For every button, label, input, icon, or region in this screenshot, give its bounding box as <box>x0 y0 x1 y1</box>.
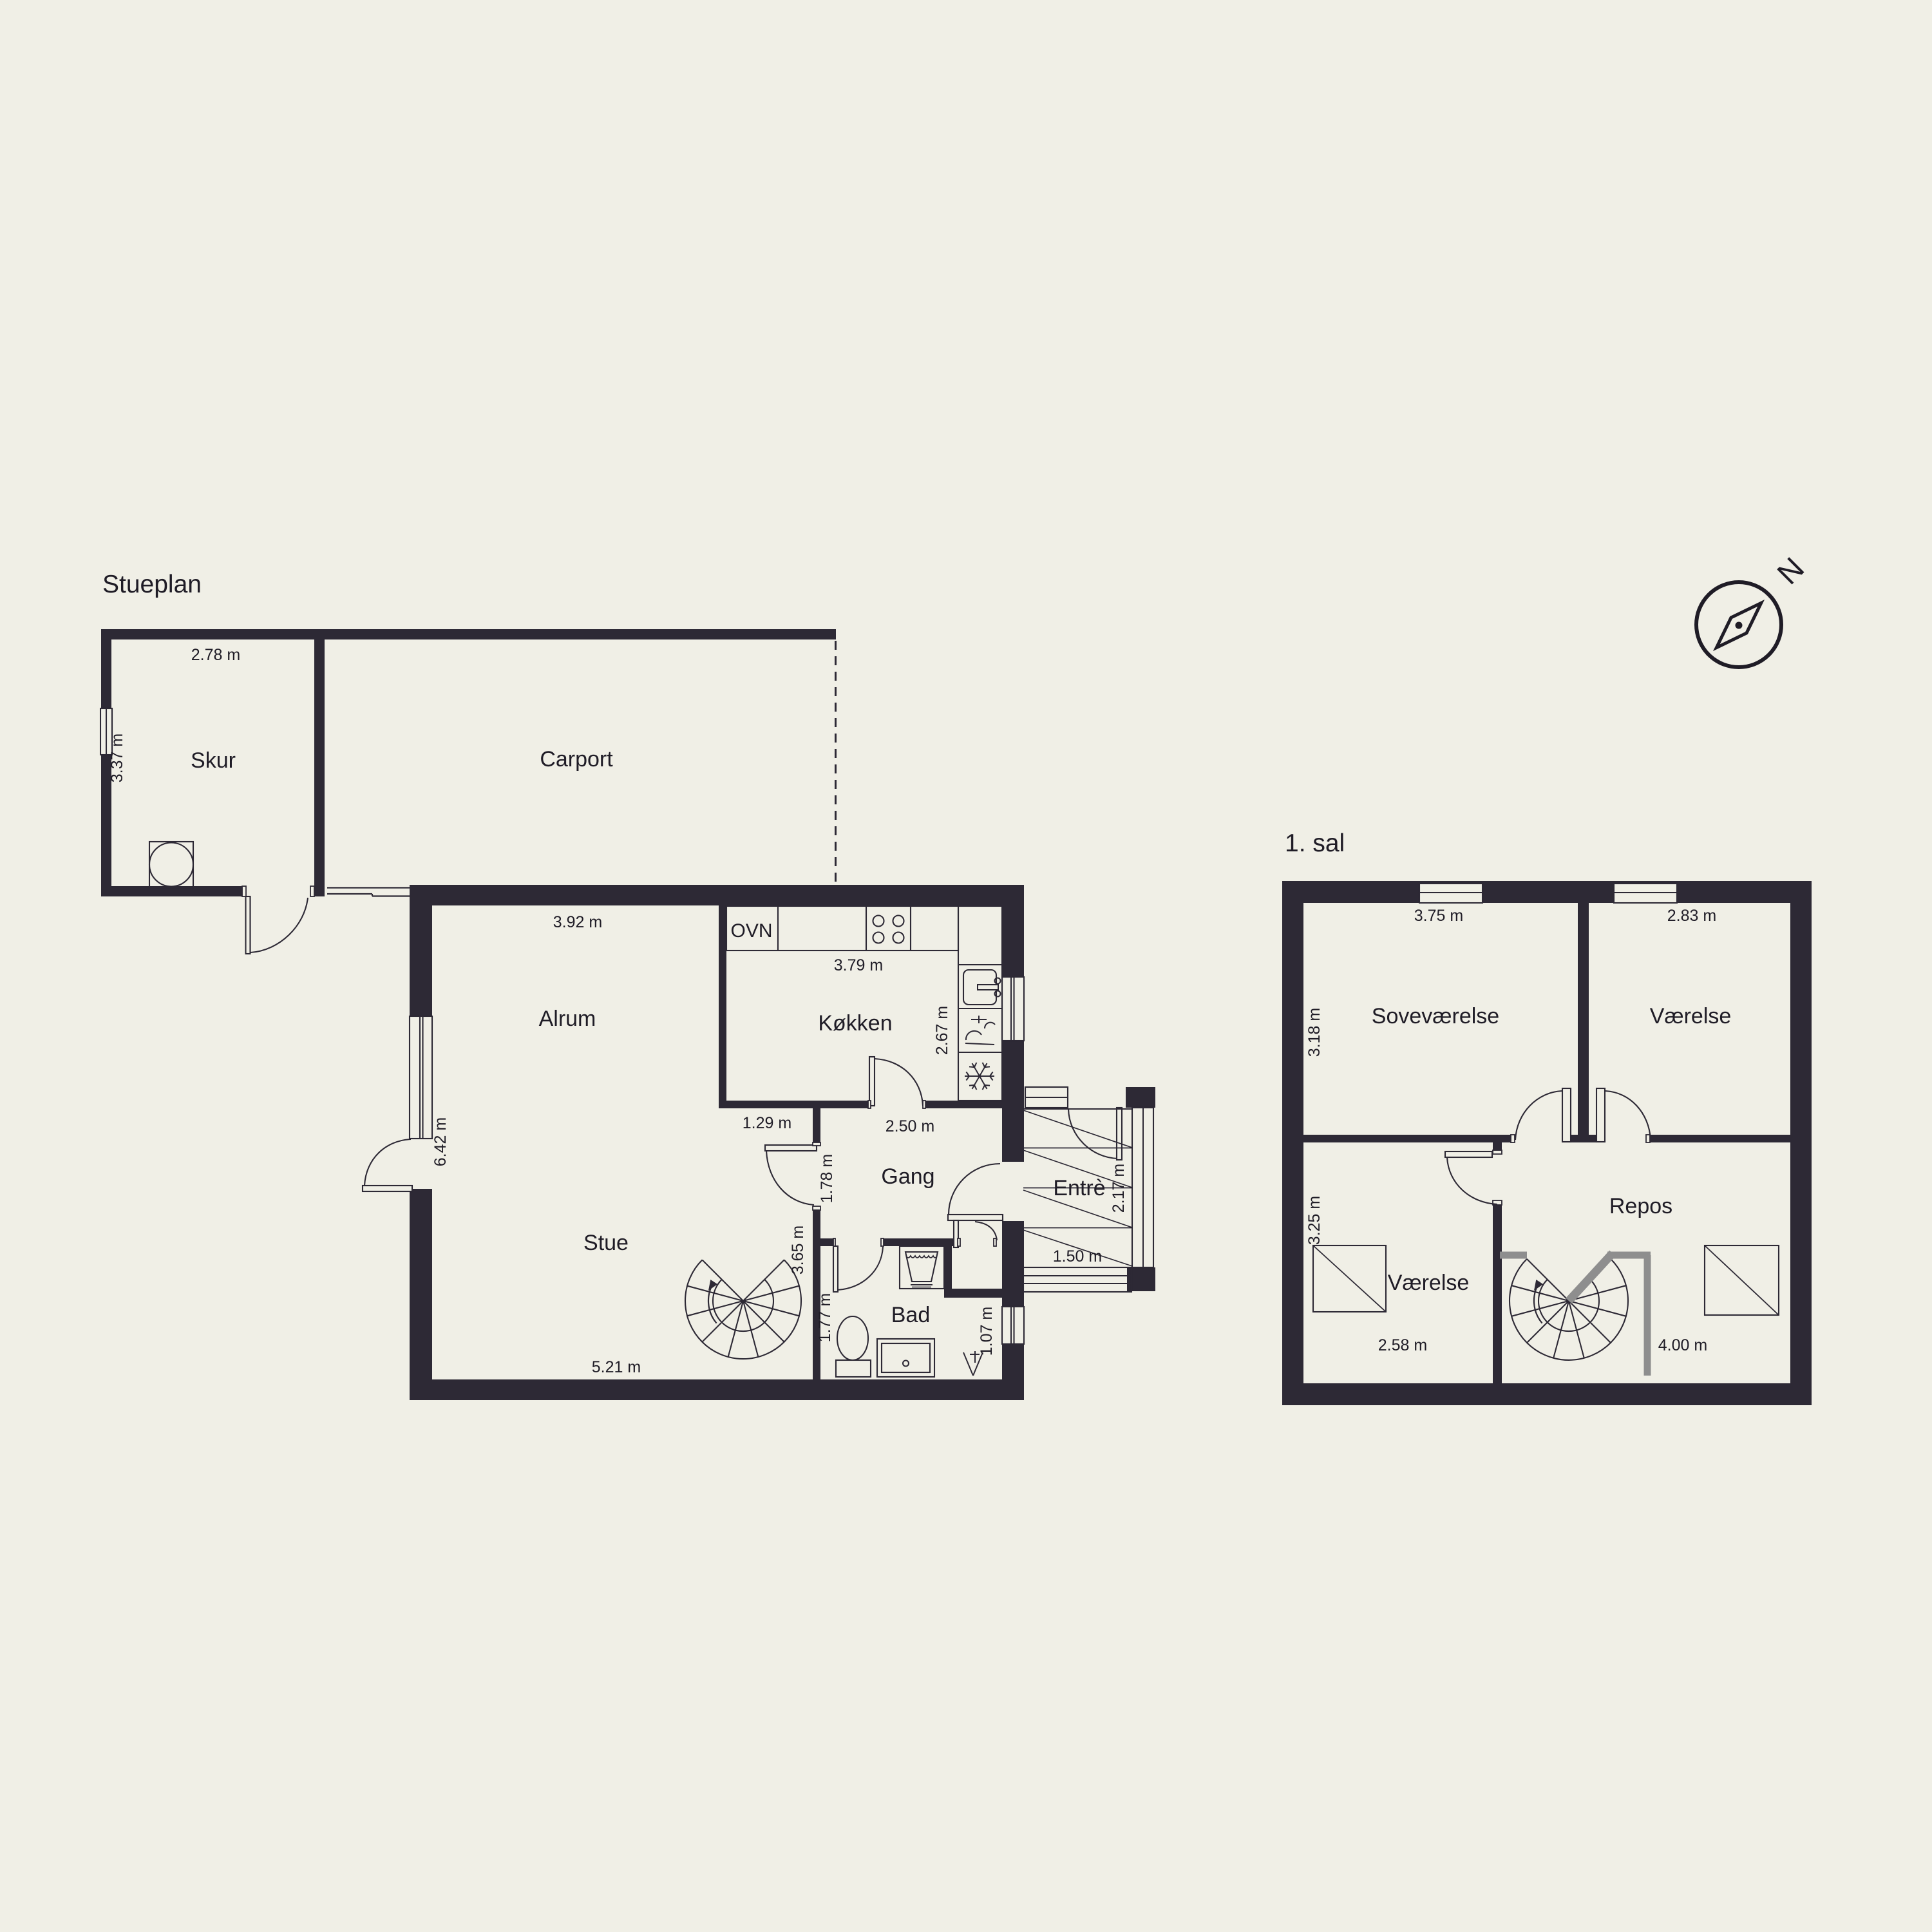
svg-text:3.92 m: 3.92 m <box>553 913 602 931</box>
svg-text:1.50 m: 1.50 m <box>1053 1247 1102 1265</box>
svg-text:Soveværelse: Soveværelse <box>1372 1004 1499 1028</box>
svg-text:Gang: Gang <box>881 1164 934 1189</box>
svg-text:Køkken: Køkken <box>818 1011 892 1036</box>
svg-text:3.18 m: 3.18 m <box>1305 1008 1323 1057</box>
svg-text:2.58 m: 2.58 m <box>1378 1336 1427 1354</box>
svg-text:Carport: Carport <box>540 747 613 772</box>
svg-text:Skur: Skur <box>191 748 236 773</box>
svg-text:2.83 m: 2.83 m <box>1667 907 1716 925</box>
svg-text:1.77 m: 1.77 m <box>816 1293 834 1342</box>
svg-text:Alrum: Alrum <box>539 1007 596 1031</box>
svg-text:6.42 m: 6.42 m <box>431 1117 450 1166</box>
svg-text:2.50 m: 2.50 m <box>885 1117 934 1135</box>
svg-text:Værelse: Værelse <box>1388 1271 1470 1295</box>
svg-text:Værelse: Værelse <box>1650 1004 1732 1028</box>
svg-text:Entrè: Entrè <box>1053 1176 1105 1200</box>
svg-text:1.07 m: 1.07 m <box>978 1307 996 1356</box>
svg-text:1.29 m: 1.29 m <box>743 1114 791 1132</box>
svg-text:2.17 m: 2.17 m <box>1110 1164 1128 1213</box>
svg-text:3.75 m: 3.75 m <box>1414 907 1463 925</box>
svg-text:5.21 m: 5.21 m <box>592 1358 641 1376</box>
svg-text:3.79 m: 3.79 m <box>834 956 883 974</box>
svg-text:3.65 m: 3.65 m <box>789 1226 807 1274</box>
svg-text:Stue: Stue <box>583 1231 629 1255</box>
svg-text:3.37 m: 3.37 m <box>108 734 126 782</box>
svg-text:OVN: OVN <box>730 920 772 942</box>
svg-text:2.78 m: 2.78 m <box>191 646 240 664</box>
svg-text:Repos: Repos <box>1609 1194 1672 1218</box>
svg-text:1. sal: 1. sal <box>1285 829 1345 857</box>
svg-text:1.78 m: 1.78 m <box>818 1154 836 1203</box>
svg-text:Bad: Bad <box>891 1303 931 1327</box>
svg-text:3.25 m: 3.25 m <box>1305 1196 1323 1245</box>
svg-text:4.00 m: 4.00 m <box>1658 1336 1707 1354</box>
svg-text:Stueplan: Stueplan <box>102 571 202 598</box>
svg-text:2.67 m: 2.67 m <box>933 1006 951 1055</box>
